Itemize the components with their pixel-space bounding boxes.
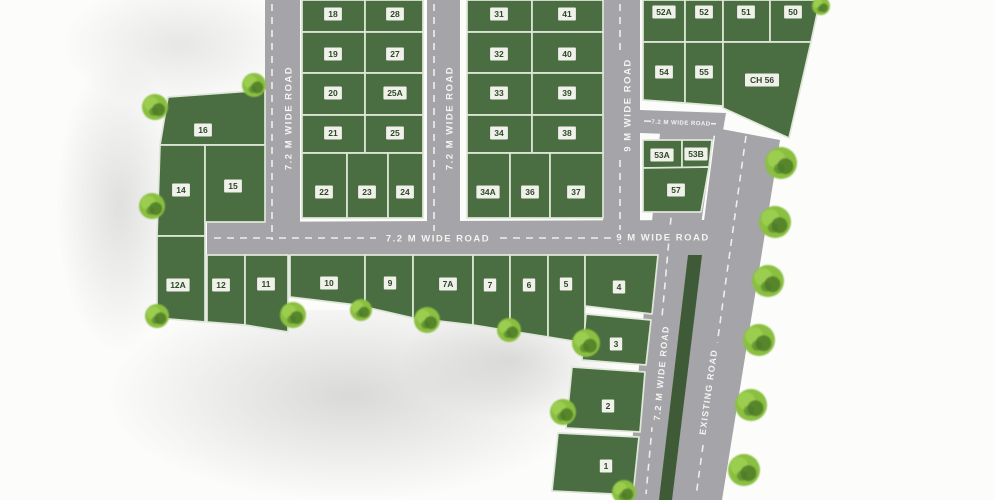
plot-label: 52A: [656, 7, 672, 17]
plot-label: 11: [262, 279, 271, 289]
plot-label: 38: [562, 128, 572, 138]
plot-label: 34A: [480, 187, 496, 197]
plot-label: 54: [659, 67, 669, 77]
tree-icon: [759, 206, 791, 238]
plot-label: 25A: [387, 88, 403, 98]
plot-label: 7: [488, 280, 493, 290]
plot-label: 4: [617, 282, 622, 292]
plot-33[interactable]: 33: [467, 73, 532, 115]
plot-label: 33: [494, 88, 504, 98]
plot-label: 53B: [688, 149, 704, 159]
plot-28[interactable]: 28: [365, 0, 423, 32]
plot-shape[interactable]: [723, 42, 811, 138]
plot-52a[interactable]: 52A: [643, 0, 685, 42]
plot-36[interactable]: 36: [510, 153, 550, 218]
plot-27[interactable]: 27: [365, 32, 423, 73]
road-label-h1-72: 7.2 M WIDE ROAD: [386, 234, 490, 245]
plot-label: 5: [564, 279, 569, 289]
plot-label: 21: [328, 128, 338, 138]
plot-label: 36: [525, 187, 535, 197]
plot-label: 41: [562, 9, 572, 19]
plot-20[interactable]: 20: [302, 73, 365, 115]
plot-label: 1: [604, 461, 609, 471]
plot-label: 23: [362, 187, 372, 197]
road-label-v1: 7.2 M WIDE ROAD: [284, 66, 295, 170]
plot-label: 57: [671, 185, 681, 195]
plot-25a[interactable]: 25A: [365, 73, 423, 115]
tree-icon: [735, 389, 767, 421]
plot-40[interactable]: 40: [532, 32, 603, 73]
plot-9[interactable]: 9: [365, 255, 413, 318]
plot-label: 10: [324, 278, 334, 288]
plot-31[interactable]: 31: [467, 0, 532, 32]
plot-label: 50: [788, 7, 798, 17]
tree-icon: [242, 73, 266, 97]
tree-icon: [550, 399, 576, 425]
plot-16[interactable]: 16: [160, 90, 265, 145]
plot-2[interactable]: 2: [566, 367, 645, 432]
plot-21[interactable]: 21: [302, 115, 365, 153]
plot-label: 15: [228, 181, 238, 191]
plot-34a[interactable]: 34A: [467, 153, 510, 218]
plot-label: 28: [390, 9, 400, 19]
plot-label: 34: [494, 128, 504, 138]
plot-label: 20: [328, 88, 338, 98]
plot-label: 27: [390, 49, 400, 59]
tree-icon: [142, 94, 168, 120]
plot-shape[interactable]: [548, 255, 585, 343]
tree-icon: [145, 304, 169, 328]
tree-icon: [572, 329, 600, 357]
plot-53b[interactable]: 53B: [682, 140, 712, 168]
plot-label: 3: [614, 339, 619, 349]
plot-label: 32: [494, 49, 504, 59]
plot-label: 19: [328, 49, 338, 59]
plot-52[interactable]: 52: [685, 0, 723, 42]
tree-icon: [743, 324, 775, 356]
site-plan-map: 182819272025A212522232431413240333934383…: [0, 0, 994, 500]
plot-23[interactable]: 23: [347, 153, 388, 218]
plot-22[interactable]: 22: [302, 153, 347, 218]
plot-label: 22: [319, 187, 329, 197]
road-label-v3: 9 M WIDE ROAD: [623, 58, 634, 151]
plot-label: 53A: [654, 150, 670, 160]
plot-label: 12A: [170, 280, 186, 290]
plot-54[interactable]: 54: [643, 42, 685, 103]
plot-label: 2: [606, 401, 611, 411]
plot-label: 18: [328, 9, 338, 19]
site-plan-canvas: 182819272025A212522232431413240333934383…: [0, 0, 994, 500]
plot-14[interactable]: 14: [157, 145, 205, 236]
tree-icon: [765, 147, 797, 179]
plot-19[interactable]: 19: [302, 32, 365, 73]
road-label-v2: 7.2 M WIDE ROAD: [445, 66, 456, 170]
road-label-h1-9: 9 M WIDE ROAD: [616, 233, 709, 244]
plot-label: 37: [571, 187, 581, 197]
plot-label: 40: [562, 49, 572, 59]
plot-4[interactable]: 4: [585, 255, 658, 314]
plot-label: 55: [699, 67, 709, 77]
plot-34[interactable]: 34: [467, 115, 532, 153]
plot-53a[interactable]: 53A: [643, 140, 682, 168]
tree-icon: [728, 454, 760, 486]
plot-18[interactable]: 18: [302, 0, 365, 32]
plot-51[interactable]: 51: [723, 0, 770, 42]
plot-5[interactable]: 5: [548, 255, 585, 343]
plot-32[interactable]: 32: [467, 32, 532, 73]
tree-icon: [414, 307, 440, 333]
plot-label: 9: [388, 278, 393, 288]
tree-icon: [280, 302, 306, 328]
plot-15[interactable]: 15: [205, 145, 265, 222]
plot-10[interactable]: 10: [290, 255, 365, 306]
plot-label: 6: [527, 280, 532, 290]
plot-label: 12: [216, 280, 226, 290]
plot-57[interactable]: 57: [643, 167, 709, 212]
plot-shape[interactable]: [160, 90, 265, 145]
plot-label: 24: [400, 187, 410, 197]
plot-label: 39: [562, 88, 572, 98]
plot-label: 16: [198, 125, 208, 135]
tree-icon: [752, 265, 784, 297]
plot-55[interactable]: 55: [685, 42, 723, 106]
plot-24[interactable]: 24: [388, 153, 423, 218]
plot-label: 14: [176, 185, 186, 195]
plot-12[interactable]: 12: [207, 255, 245, 325]
tree-icon: [497, 318, 521, 342]
plot-label: 31: [494, 9, 504, 19]
plot-label: 52: [699, 7, 709, 17]
tree-icon: [350, 299, 372, 321]
plot-label: CH 56: [750, 75, 774, 85]
plot-25[interactable]: 25: [365, 115, 423, 153]
plot-39[interactable]: 39: [532, 73, 603, 115]
plot-ch-56[interactable]: CH 56: [723, 42, 811, 138]
plot-label: 7A: [443, 279, 454, 289]
plot-label: 51: [741, 7, 751, 17]
plot-label: 25: [390, 128, 400, 138]
plot-37[interactable]: 37: [550, 153, 603, 218]
tree-icon: [139, 193, 165, 219]
plot-41[interactable]: 41: [532, 0, 603, 32]
plot-38[interactable]: 38: [532, 115, 603, 153]
